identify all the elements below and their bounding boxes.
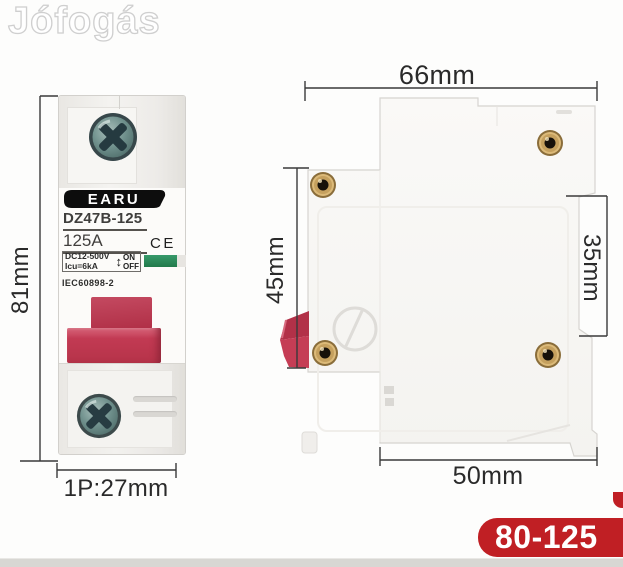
bottom-terminal-section — [59, 363, 185, 454]
dimension-label-front-section-height: 45mm — [262, 220, 290, 320]
model-number: DZ47B-125 — [63, 210, 147, 231]
rivet — [537, 130, 563, 156]
spec-box: DC12-500V Icu=6kA ↕ ON OFF — [62, 251, 141, 272]
badge-corner-decoration — [613, 492, 623, 508]
dimension-label-din-rail-gap: 35mm — [577, 218, 605, 318]
watermark: Jófogás — [8, 0, 161, 43]
breaker-front-view: EARU DZ47B-125 125A CE DC12-500V Icu=6kA… — [58, 95, 186, 455]
status-indicator — [144, 255, 177, 267]
breaker-side-view — [280, 98, 597, 456]
front-foot-tab — [302, 432, 317, 453]
toggle-switch-lever — [91, 297, 152, 329]
embossed-circle-mark — [334, 308, 376, 350]
product-image: Jófogás EARU DZ47B-125 125A CE DC12-500V… — [0, 0, 623, 567]
off-label: OFF — [123, 262, 139, 271]
standard-label: IEC60898-2 — [62, 278, 114, 288]
bottom-terminal-panel — [67, 370, 173, 448]
rivet — [535, 342, 561, 368]
ce-mark: CE — [150, 235, 176, 252]
dimension-label-pole-width: 1P:27mm — [46, 475, 186, 503]
bottom-strip — [0, 558, 623, 567]
side-top-notch — [556, 110, 572, 114]
on-off-arrow-icon: ↕ — [116, 255, 123, 268]
dimension-label-top-width: 66mm — [387, 60, 487, 91]
status-indicator-slot — [177, 255, 186, 267]
on-label: ON — [123, 253, 139, 262]
on-off-labels: ON OFF — [123, 253, 140, 271]
brand-logo: EARU — [62, 189, 170, 209]
mold-seam — [119, 96, 120, 109]
mold-mark — [384, 386, 394, 394]
toggle-switch-base — [67, 328, 161, 363]
brand-text: EARU — [88, 191, 141, 208]
rivet — [312, 340, 338, 366]
top-terminal-panel — [67, 107, 137, 184]
top-terminal-section — [59, 96, 185, 189]
rivet — [310, 172, 336, 198]
breaking-capacity: Icu=6kA — [65, 262, 116, 272]
side-body-outline — [308, 98, 597, 456]
dimension-label-overall-height: 81mm — [7, 230, 35, 330]
spec-column: DC12-500V Icu=6kA — [63, 252, 116, 271]
terminal-groove — [133, 411, 177, 417]
label-panel: EARU DZ47B-125 125A CE DC12-500V Icu=6kA… — [59, 188, 185, 366]
mold-mark — [385, 398, 394, 406]
terminal-groove — [133, 396, 177, 402]
dimension-label-base-width: 50mm — [438, 462, 538, 491]
size-range-badge: 80-125 — [478, 518, 623, 557]
